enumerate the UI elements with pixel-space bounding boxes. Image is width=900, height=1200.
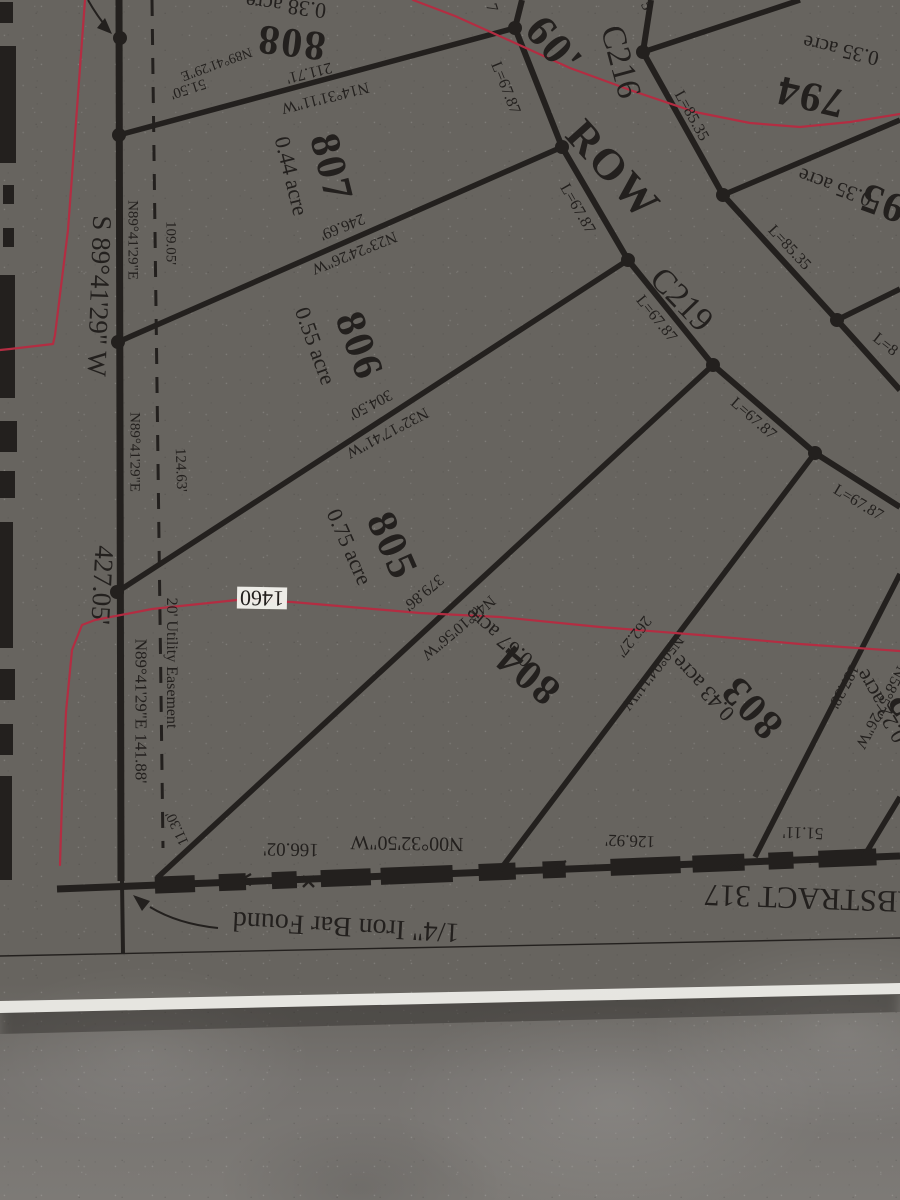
sheet-edge-dash-strip [0,2,17,880]
dim-109-05: 109.05' [163,221,178,265]
dim-51-11: 51.11' [782,824,823,842]
iron-bar-leader [150,907,218,928]
plat-linework [0,0,900,1010]
corner-arrow-head [97,18,112,34]
utility-easement-label: 20' Utility Easement [163,598,179,729]
photo-scene: 8080.38 acre8070.44 acre8060.55 acre8050… [0,0,900,1200]
dim-166-02: 166.02' [263,839,319,859]
bearing-s89-west-boundary: S 89°41'29" W [83,215,116,377]
dim-126-92: 126.92' [605,832,655,851]
west-boundary-stub [122,881,123,953]
abstract-317-label: ABSTRACT 317 [704,880,900,919]
corner-monument-dots [97,18,844,911]
bearing-left-n89-c: N89°41'29"E 141.88' [133,639,150,784]
lot-line-795-east [837,289,900,320]
lot-line-802-east [863,797,900,858]
lot-line-794-west [643,0,800,52]
dim-427-05: 427.05' [86,545,117,625]
iron-bar-arrow-head [133,895,150,911]
lot-808-number: 808 [254,17,328,67]
bearing-left-n89-b: N89°41'29"E [127,412,142,492]
bearing-bottom-n00: N00°32'50"W [350,832,463,854]
row-inner-curve [515,0,900,507]
dim-124-63: 124.63' [172,448,189,492]
lot-line-805-804 [157,365,713,878]
contour-1460-label: 1460 [237,587,287,610]
bearing-left-n89-a: N89°41'29"E [125,200,140,280]
